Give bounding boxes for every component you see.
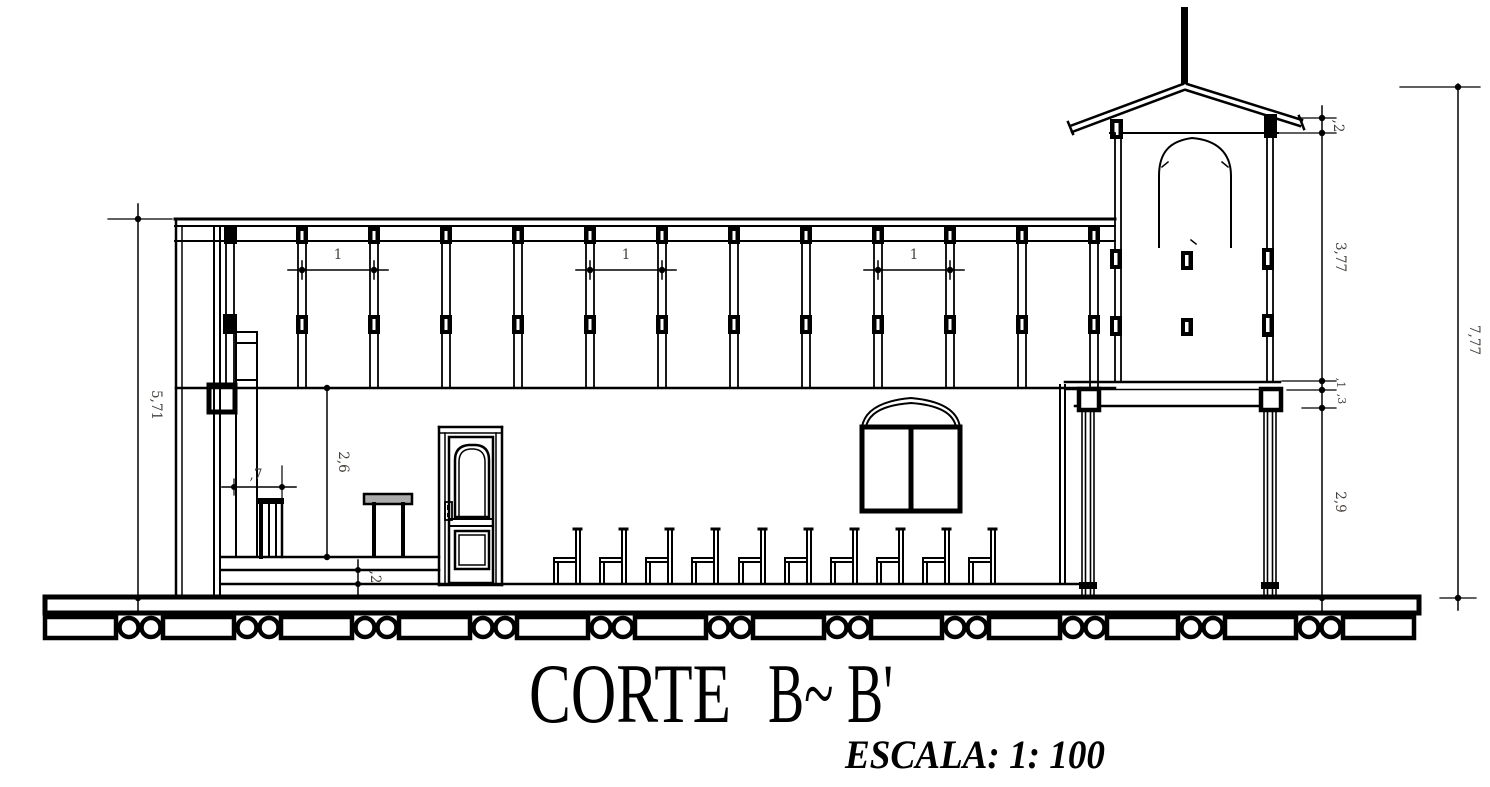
section-drawing: 1 1 1 [0, 0, 1490, 787]
dim-interior-height: 2,6 [317, 385, 351, 560]
portico-columns [1079, 410, 1279, 595]
drawing-title: CORTE [529, 647, 731, 741]
dim-step: ,2 [348, 560, 383, 597]
nave-roof-structure [175, 219, 1115, 388]
svg-text:2,6: 2,6 [335, 451, 351, 472]
tower-beam-markers [1110, 248, 1274, 337]
foundation [45, 597, 1419, 638]
chancel-pillar [236, 332, 257, 557]
door [439, 427, 502, 585]
bell-tower [1065, 7, 1304, 595]
dim-nave-height: 5,71 [108, 204, 172, 610]
bell-arch [1159, 138, 1231, 247]
svg-text:7,77: 7,77 [1466, 325, 1482, 355]
dim-overall-height: 7,77 [1400, 84, 1482, 610]
svg-text:,2: ,2 [367, 571, 383, 584]
drawing-title-mark: B~ B' [768, 647, 893, 741]
benches [554, 529, 996, 584]
title-block: CORTE B~ B' ESCALA: 1: 100 [529, 647, 1105, 777]
cross-mast [1181, 7, 1188, 84]
dim-bay-3: 1 [910, 247, 919, 263]
tower-walls [1115, 133, 1273, 382]
svg-text:5,71: 5,71 [148, 390, 164, 420]
nave-right-wall [1060, 385, 1065, 584]
drawing-scale: ESCALA: 1: 100 [844, 732, 1105, 777]
beam-section-marker [223, 314, 237, 334]
dim-tower-slab: ,1 [1334, 378, 1347, 389]
dim-tower-upper: 3,77 [1332, 242, 1348, 272]
door-lower-panel [455, 531, 489, 569]
dim-chain-right: ,2 3,77 ,1 ,3 2,9 [1279, 106, 1348, 610]
bay-dimensions: 1 1 1 [288, 247, 964, 279]
dim-bay-1: 1 [334, 247, 343, 263]
window [862, 398, 960, 511]
ground-slab [45, 597, 1419, 613]
dim-lectern: ,7 [222, 466, 296, 499]
dim-tower-eave: ,2 [1330, 120, 1346, 133]
dim-bay-2: 1 [622, 247, 631, 263]
architectural-sheet: 1 1 1 [0, 0, 1490, 787]
altar-table [364, 494, 412, 556]
lectern [257, 498, 284, 557]
dim-tower-beam: ,3 [1335, 394, 1348, 405]
svg-text:,7: ,7 [250, 467, 263, 483]
dim-tower-lower: 2,9 [1332, 491, 1348, 512]
beam-section-marker [224, 227, 237, 244]
